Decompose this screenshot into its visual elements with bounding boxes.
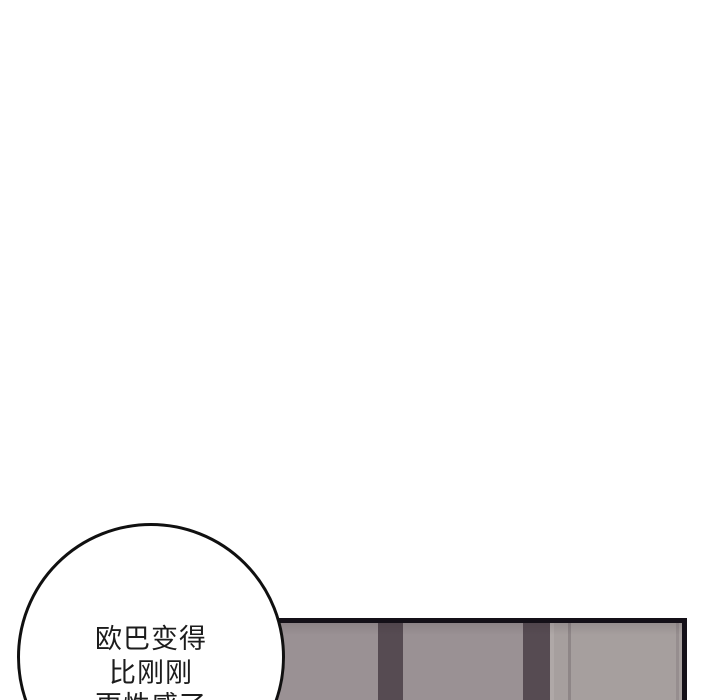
wall-section-middle [403, 623, 523, 700]
wall-section-light [550, 623, 682, 700]
speech-bubble-text: 欧巴变得 比刚刚 更性感了 [95, 623, 207, 700]
pillar-stripe [523, 623, 550, 700]
pillar-stripe [378, 623, 403, 700]
speech-line-1: 欧巴变得 [95, 623, 207, 657]
comic-panel [276, 618, 687, 700]
speech-line-3: 更性感了 [95, 690, 207, 700]
page-background: 欧巴变得 比刚刚 更性感了 [0, 0, 720, 700]
wall-seam-line [676, 623, 679, 700]
wall-seam-line [568, 623, 571, 700]
wall-section-left [276, 623, 378, 700]
speech-line-2: 比刚刚 [95, 657, 207, 691]
